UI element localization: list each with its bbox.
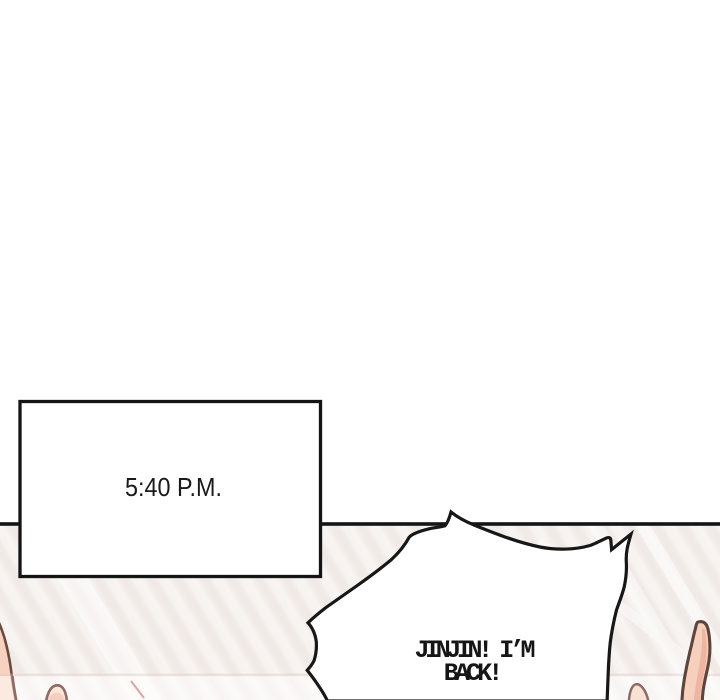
svg-text:BACK!: BACK! xyxy=(444,659,504,688)
svg-text:5:40 P.M.: 5:40 P.M. xyxy=(125,472,222,502)
